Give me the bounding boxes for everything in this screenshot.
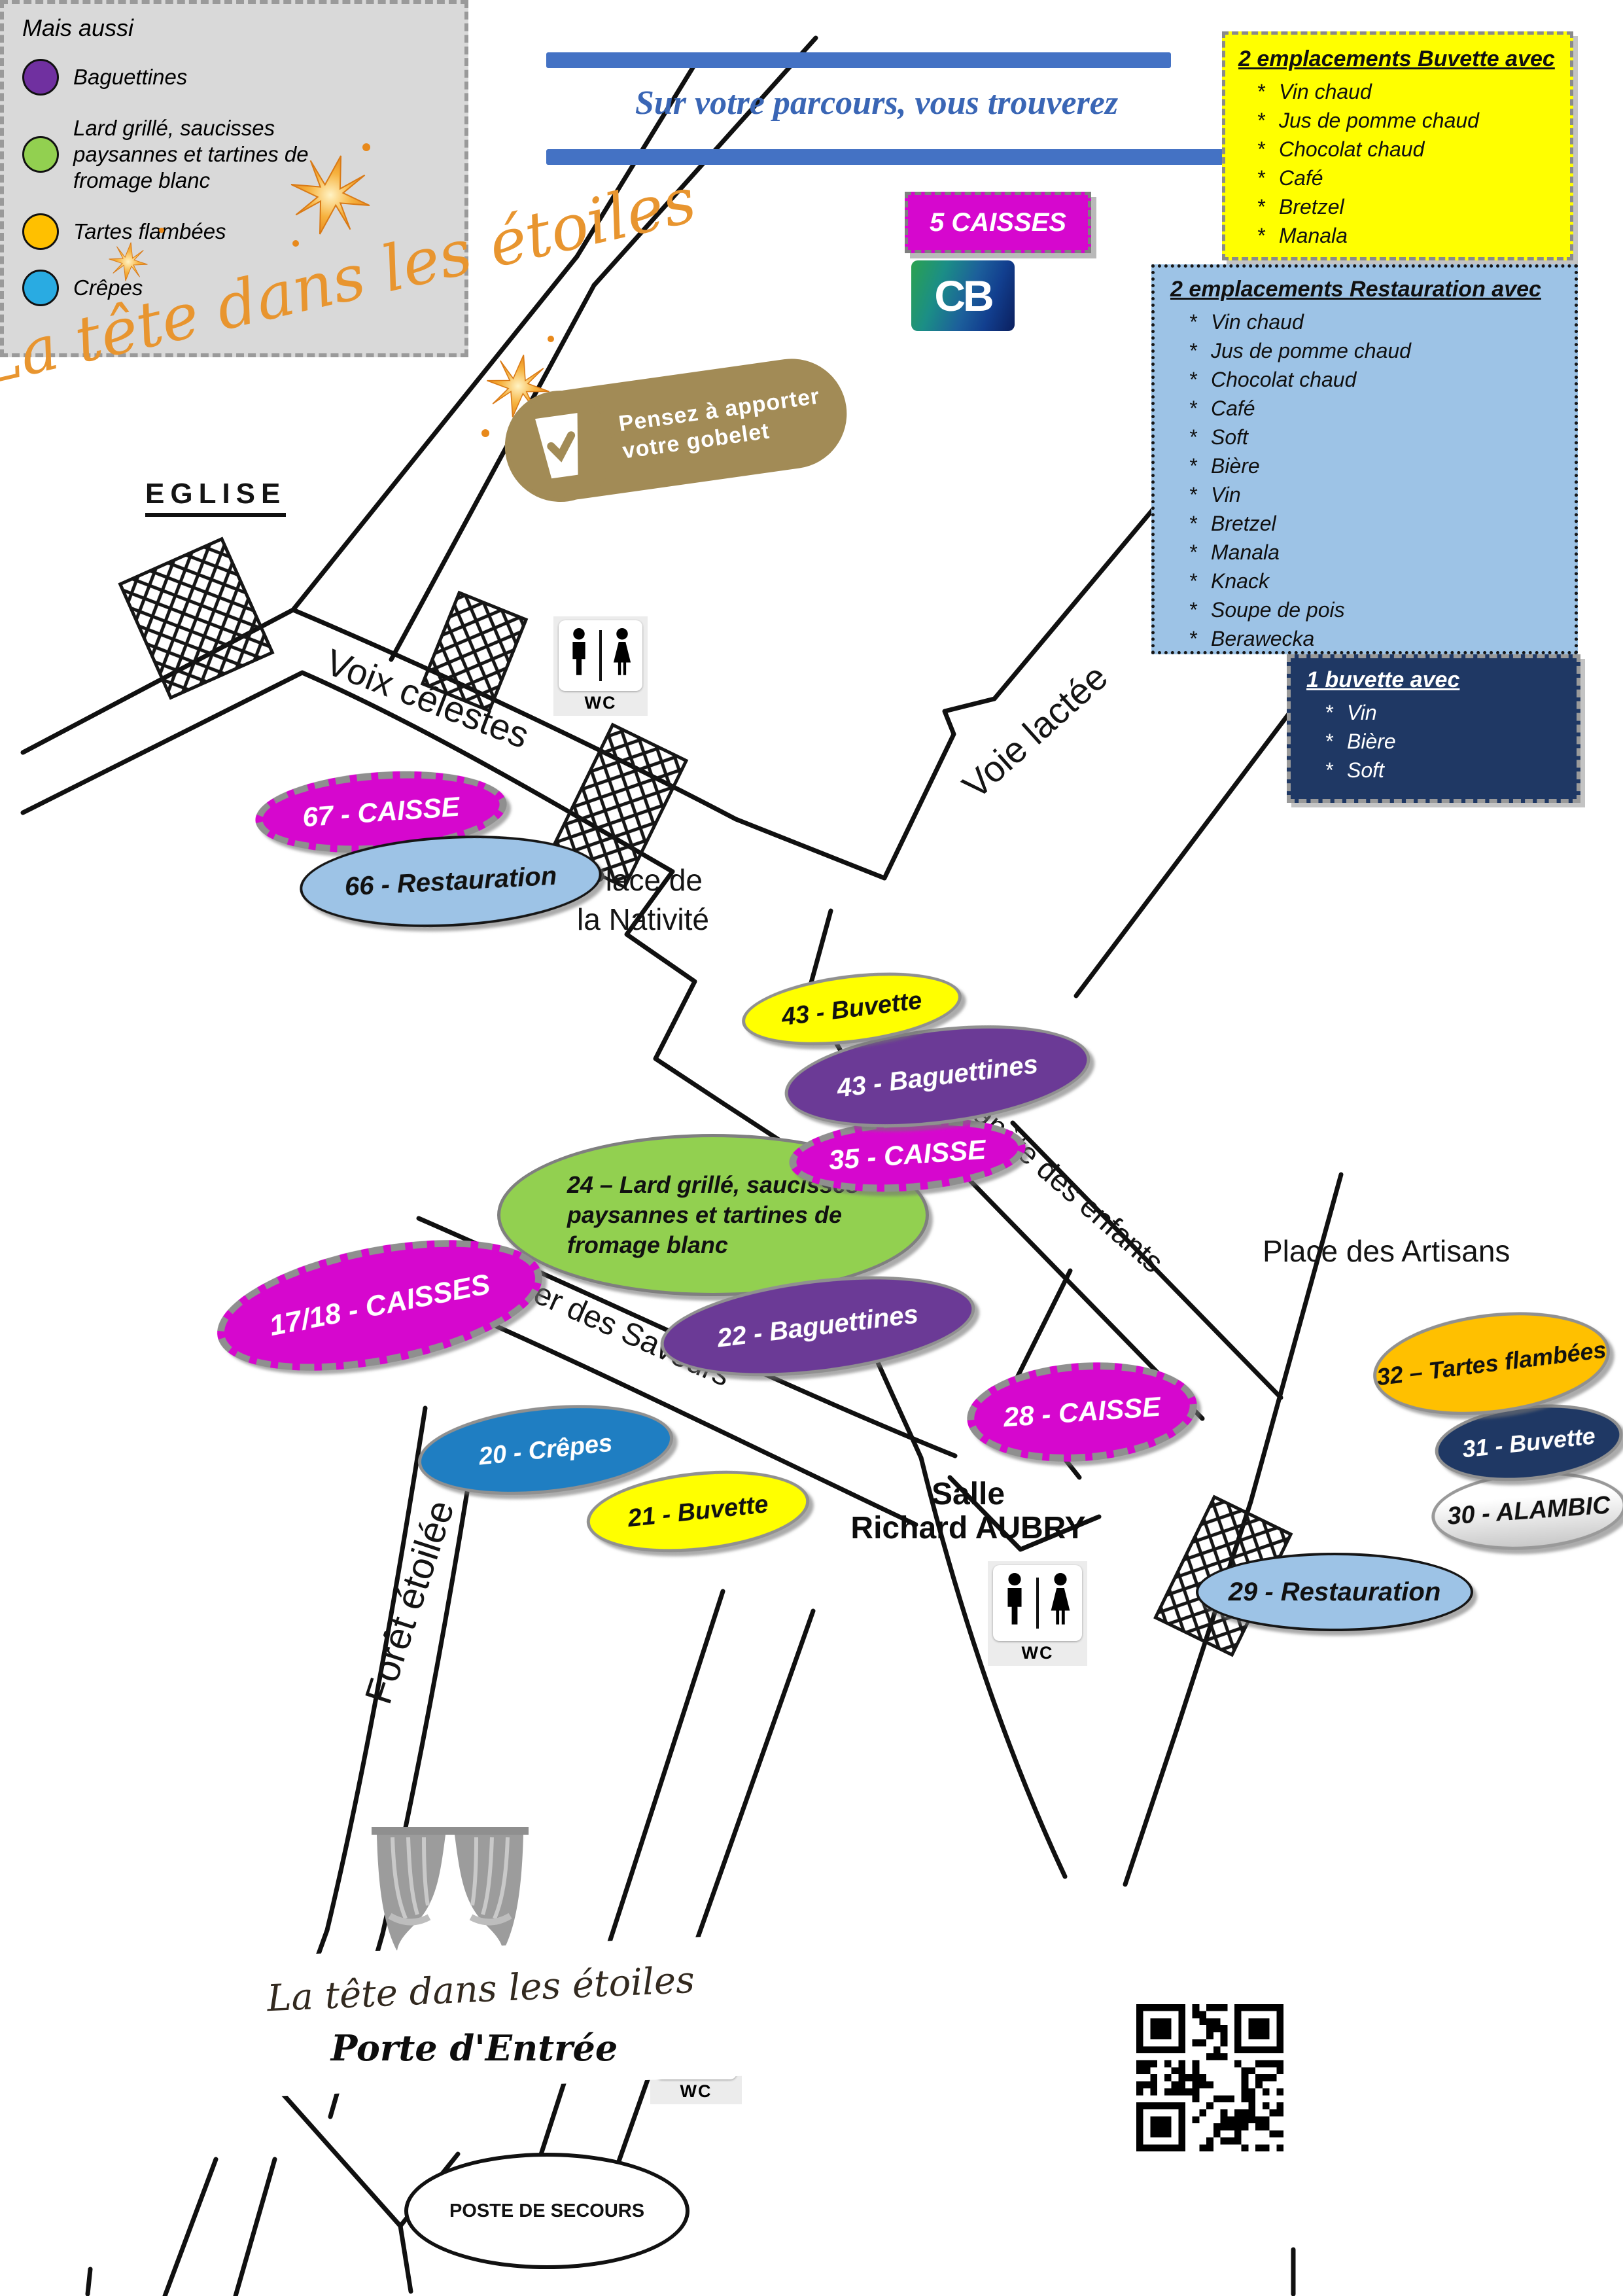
man-icon xyxy=(565,626,593,686)
man-icon xyxy=(1000,1570,1030,1636)
church-label: EGLISE xyxy=(145,478,286,517)
wc-label: WC xyxy=(559,693,642,713)
qr-code xyxy=(1136,2004,1283,2151)
wc-sign-salle: WC xyxy=(988,1561,1087,1666)
woman-icon xyxy=(608,626,636,686)
info-box-title: 2 emplacements Buvette avec xyxy=(1238,46,1557,72)
page-title: Sur votre parcours, vous trouverez xyxy=(576,84,1178,122)
stand-ellipse-29-restauration: 29 - Restauration xyxy=(1196,1553,1473,1631)
info-box-title: 1 buvette avec xyxy=(1306,667,1561,693)
woman-icon xyxy=(1045,1570,1075,1636)
info-box-buvette-1: 1 buvette avec Vin Bière Soft xyxy=(1287,654,1580,803)
place-nativite-line2: la Nativité xyxy=(577,902,709,937)
cb-logo: CB xyxy=(911,260,1015,331)
info-box-buvette-2: 2 emplacements Buvette avec Vin chaud Ju… xyxy=(1222,31,1573,260)
curtain-graphic xyxy=(372,1827,529,1951)
info-box-restauration-2: 2 emplacements Restauration avec Vin cha… xyxy=(1151,264,1578,654)
salle-richard-aubry-label: Salle Richard AUBRY xyxy=(844,1477,1092,1545)
first-aid-ellipse: POSTE DE SECOURS xyxy=(404,2153,689,2269)
header-rule-top xyxy=(546,52,1171,68)
caisses-count-badge: 5 CAISSES xyxy=(905,192,1091,253)
place-nativite-line1: Place de xyxy=(585,862,703,898)
event-map-poster: Sur votre parcours, vous trouverez La tê… xyxy=(0,0,1623,2296)
place-des-artisans: Place des Artisans xyxy=(1263,1233,1510,1269)
wc-sign-north: WC xyxy=(553,616,648,716)
entrance-label: Porte d'Entrée xyxy=(111,2021,837,2075)
wc-label: WC xyxy=(993,1643,1082,1663)
info-box-title: 2 emplacements Restauration avec xyxy=(1170,277,1559,302)
wc-label: WC xyxy=(655,2081,737,2102)
church-building xyxy=(120,539,273,698)
